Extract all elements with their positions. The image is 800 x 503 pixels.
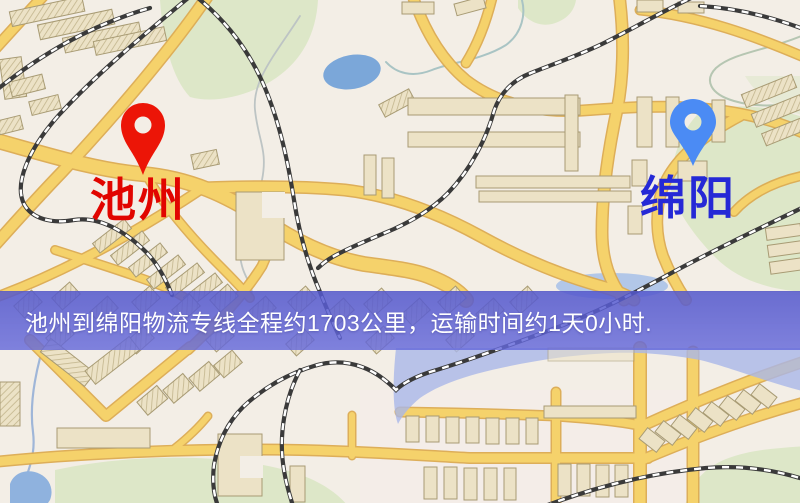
origin-city-label: 池州 (90, 173, 186, 227)
route-info-text: 池州到绵阳物流专线全程约1703公里，运输时间约1天0小时. (25, 304, 652, 338)
route-info-banner: 池州到绵阳物流专线全程约1703公里，运输时间约1天0小时. (0, 291, 800, 350)
destination-city-label: 绵阳 (640, 171, 736, 225)
map-canvas: 池州 绵阳 池州到绵阳物流专线全程约1703公里，运输时间约1天0小时. (0, 0, 800, 503)
